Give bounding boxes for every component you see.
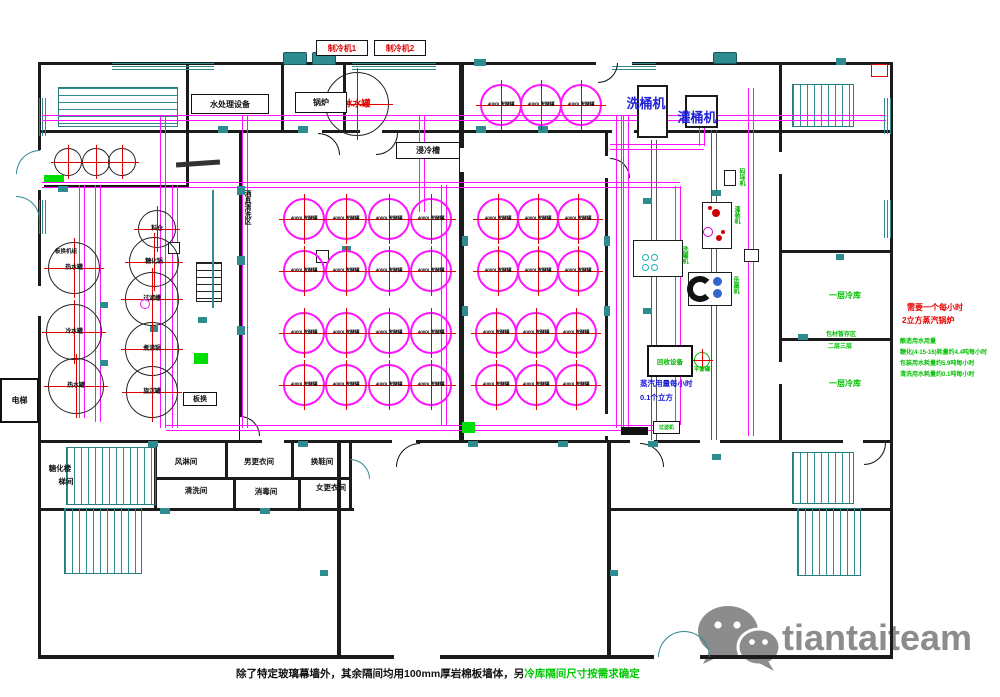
tank-label: 4000L发酵罐 — [418, 216, 444, 221]
labeled-box: 过滤机 — [653, 421, 680, 434]
tank-label: 4000L发酵罐 — [563, 330, 589, 335]
wall-fixture — [604, 236, 610, 246]
vertical-label: 码垛机 — [738, 168, 744, 198]
tank-label: 4000L发酵罐 — [523, 330, 549, 335]
labeled-box: 板换 — [183, 392, 217, 406]
machine-outline — [724, 170, 736, 186]
tank-label: 4000L发酵罐 — [565, 268, 591, 273]
tank-label: 4000L发酵罐 — [525, 216, 551, 221]
tank-label: 4000L发酵罐 — [483, 382, 509, 387]
tank-label: 4000L发酵罐 — [376, 268, 402, 273]
tank-label: 4000L发酵罐 — [333, 330, 359, 335]
pipe — [699, 126, 705, 146]
wall — [186, 62, 189, 133]
window-hatch — [884, 200, 892, 238]
tank-label: 4000L发酵罐 — [565, 216, 591, 221]
wechat-icon — [696, 604, 782, 672]
machine-detail-dot — [716, 235, 722, 241]
text-label: 板换机组 — [55, 250, 77, 256]
door-opening — [460, 148, 465, 172]
pipe — [748, 88, 754, 436]
text-label: 包材暂存区 — [826, 332, 856, 338]
tank-label: 4000L发酵罐 — [291, 268, 317, 273]
wall-fixture — [58, 186, 68, 192]
text-label: 男更衣间 — [244, 458, 274, 466]
text-label: 洗桶机 — [626, 97, 665, 111]
door-opening — [779, 152, 782, 174]
door-opening — [843, 439, 863, 445]
tank-cross — [68, 145, 69, 179]
text-label: 一层冷库 — [829, 380, 861, 388]
tank-label: 4000L发酵罐 — [485, 268, 511, 273]
wall-fixture — [648, 441, 658, 447]
pipe — [616, 115, 622, 428]
text-label: 女更衣间 — [316, 484, 346, 492]
door-arc-icon — [598, 63, 618, 83]
wall-fixture — [712, 454, 721, 460]
labeled-box: 水处理设备 — [191, 94, 269, 114]
tank-label: 热水罐 — [65, 265, 82, 271]
machine-detail-dot — [713, 277, 722, 286]
wall — [281, 62, 284, 133]
machine-detail-dot — [651, 254, 658, 261]
machine-detail-dot — [712, 209, 720, 217]
wall — [186, 130, 189, 188]
machine-outline — [637, 85, 668, 138]
hvac-unit-icon — [283, 52, 307, 65]
text-label: 清洗用水耗量约0.1吨每小时 — [900, 372, 974, 378]
door-opening — [394, 654, 440, 662]
tank-label: 4000L发酵罐 — [333, 216, 359, 221]
text-label: 风淋间 — [175, 458, 198, 466]
text-label: 换鞋间 — [311, 458, 334, 466]
text-label: 一层冷库 — [829, 292, 861, 300]
staircase — [792, 452, 854, 504]
wall-fixture — [836, 58, 846, 65]
staircase — [64, 508, 142, 574]
pipe — [675, 186, 681, 425]
red-marker — [871, 64, 888, 77]
staircase — [797, 508, 861, 576]
machine-detail-dot — [651, 264, 658, 271]
labeled-box: 制冷机1 — [316, 40, 368, 56]
text-label: 酿造用水用量 — [900, 339, 936, 345]
machine-outline — [633, 240, 683, 277]
tank-label: 4000L发酵罐 — [483, 330, 509, 335]
tank-label: 4000L发酵罐 — [568, 102, 594, 107]
tank-label: 4000L发酵罐 — [485, 216, 511, 221]
tank-label: 热水罐 — [67, 383, 84, 389]
wall — [38, 130, 893, 133]
wall-fixture — [462, 236, 468, 246]
pipe — [419, 115, 425, 212]
green-marker — [462, 422, 475, 433]
tank-label: 旋沉罐 — [143, 389, 160, 395]
staircase — [66, 447, 156, 505]
tank-label: 4000L发酵罐 — [376, 216, 402, 221]
platform-bar — [176, 159, 220, 167]
tank-label: 4000L发酵罐 — [291, 382, 317, 387]
tank-label: 4000L发酵罐 — [376, 330, 402, 335]
vertical-label: 灌装机 — [733, 206, 739, 250]
wall — [38, 655, 893, 659]
wall — [38, 440, 893, 443]
tank-cross — [122, 145, 123, 179]
labeled-box: 锅炉 — [295, 92, 347, 113]
wall-fixture — [643, 308, 652, 314]
text-label: 平衡罐 — [694, 368, 711, 374]
door-opening — [262, 439, 284, 445]
text-label: 2立方蒸汽锅炉 — [902, 317, 954, 325]
green-marker — [194, 353, 208, 364]
tank-label: 4000L发酵罐 — [563, 382, 589, 387]
tank-label: 4000L发酵罐 — [418, 268, 444, 273]
watermark: tiantaiteam — [696, 604, 972, 672]
tank-label: 4000L发酵罐 — [488, 102, 514, 107]
wall — [337, 443, 341, 657]
wall-fixture — [298, 126, 308, 133]
pipe — [42, 115, 886, 121]
text-label: 糖化楼 — [49, 465, 72, 473]
text-label: 0.1个立方 — [640, 394, 673, 402]
window-hatch — [112, 63, 214, 71]
brewery-floorplan-drawing: 除了特定玻璃幕墙外，其余隔间均用100mm厚岩棉板墙体，另冷库隔间尺寸按需求确定… — [0, 0, 1000, 697]
hvac-unit-icon — [713, 52, 737, 64]
wall-fixture — [604, 306, 610, 316]
door-opening — [700, 439, 720, 445]
wall-fixture — [198, 317, 207, 323]
wall-fixture — [260, 508, 270, 514]
window-hatch — [39, 200, 47, 234]
equipment-block — [621, 427, 648, 435]
pipe — [623, 115, 629, 428]
wall-fixture — [320, 570, 328, 576]
pipe — [42, 182, 680, 188]
door-arc-icon — [658, 631, 684, 657]
wall-fixture — [558, 441, 568, 447]
tank-label: 料仓 — [151, 226, 163, 232]
wall — [225, 443, 228, 480]
green-marker — [44, 175, 64, 182]
labeled-box: 回收设备 — [647, 345, 693, 377]
text-label: 消毒间 — [255, 488, 278, 496]
wall-fixture — [298, 441, 308, 447]
text-label: 糖化(4-15-16)耗量约4.4吨每小时 — [900, 350, 987, 356]
wall-fixture — [100, 302, 108, 308]
wall-fixture — [462, 306, 468, 316]
door-arc-icon — [376, 133, 398, 155]
text-label: 蒸汽用量每小时 — [640, 380, 693, 388]
door-opening — [605, 156, 608, 178]
tank-label: 4000L发酵罐 — [291, 330, 317, 335]
wall — [890, 62, 893, 659]
door-opening — [779, 362, 782, 384]
wall-fixture — [712, 190, 721, 196]
footnote-green: 冷库隔间尺寸按需求确定 — [524, 668, 640, 680]
wall-fixture — [218, 126, 228, 133]
staircase — [196, 262, 222, 302]
door-arc-icon — [318, 133, 340, 155]
tank-cross — [96, 145, 97, 179]
tank-label: 煮沸锅 — [143, 346, 160, 352]
vertical-label: 酒具清洗区 — [244, 190, 251, 266]
wall-fixture — [538, 126, 548, 133]
wall-fixture — [237, 326, 245, 335]
labeled-box: 浸冷槽 — [396, 142, 460, 159]
wall — [233, 480, 236, 510]
tank-label: 冷水罐 — [65, 329, 82, 335]
turntable-icon — [687, 276, 713, 302]
tank-label: 4000L发酵罐 — [376, 382, 402, 387]
wall — [607, 443, 611, 657]
wall-fixture — [148, 441, 158, 447]
vertical-label: 杀菌机 — [732, 276, 738, 314]
machine-detail-dot — [708, 206, 712, 210]
tank-label: 4000L发酵罐 — [418, 382, 444, 387]
wall — [781, 250, 891, 253]
wall — [154, 477, 352, 480]
tank-label: 4000L发酵罐 — [333, 382, 359, 387]
wall — [291, 443, 294, 480]
text-label: 包装用水耗量约5.9吨每小时 — [900, 361, 974, 367]
machine-detail-dot — [713, 289, 722, 298]
text-label: 二层三层 — [828, 344, 852, 350]
wall-fixture — [212, 190, 214, 308]
wall — [298, 480, 301, 510]
door-arc-icon — [864, 443, 886, 465]
tank-label: 4000L发酵罐 — [528, 102, 554, 107]
tank-label: 4000L发酵罐 — [291, 216, 317, 221]
machine-detail-dot — [703, 227, 713, 237]
text-label: 需要一个每小时 — [907, 304, 963, 312]
wall-fixture — [474, 59, 486, 66]
tank-label: 冰水罐 — [344, 99, 370, 108]
window-hatch — [352, 63, 436, 71]
machine-detail-dot — [642, 254, 649, 261]
text-label: 灌桶机 — [677, 111, 716, 125]
tank-label: 糖化锅 — [145, 259, 162, 265]
door-opening — [36, 286, 44, 316]
wall-fixture — [836, 254, 844, 260]
machine-detail-dot — [721, 230, 725, 234]
door-arc-icon — [16, 196, 40, 220]
labeled-box: 制冷机2 — [374, 40, 426, 56]
tank-label: 4000L发酵罐 — [418, 330, 444, 335]
wall-fixture — [643, 198, 652, 204]
text-label: 清洗间 — [185, 487, 208, 495]
machine-detail-dot — [140, 299, 150, 309]
text-label: 梯间 — [59, 478, 74, 486]
vertical-label: 洗罐机 — [681, 246, 687, 286]
door-arc-icon — [396, 443, 420, 467]
wall-fixture — [468, 441, 478, 447]
pipe — [242, 115, 248, 428]
wall-fixture — [476, 126, 486, 133]
machine-detail-dot — [642, 264, 649, 271]
watermark-text: tiantaiteam — [782, 617, 972, 659]
wall-fixture — [100, 360, 108, 366]
labeled-box: 电梯 — [0, 378, 39, 423]
footnote-black: 除了特定玻璃幕墙外，其余隔间均用100mm厚岩棉板墙体，另 — [236, 668, 524, 680]
door-arc-icon — [16, 150, 40, 174]
machine-outline — [744, 249, 759, 262]
wall-fixture — [160, 508, 170, 514]
tank-label: 4000L发酵罐 — [333, 268, 359, 273]
tank-label: 4000L发酵罐 — [525, 268, 551, 273]
wall-fixture — [610, 570, 618, 576]
wall-fixture — [798, 334, 808, 340]
door-arc-icon — [350, 459, 370, 479]
tank-label: 4000L发酵罐 — [523, 382, 549, 387]
footnote: 除了特定玻璃幕墙外，其余隔间均用100mm厚岩棉板墙体，另冷库隔间尺寸按需求确定 — [236, 666, 640, 681]
